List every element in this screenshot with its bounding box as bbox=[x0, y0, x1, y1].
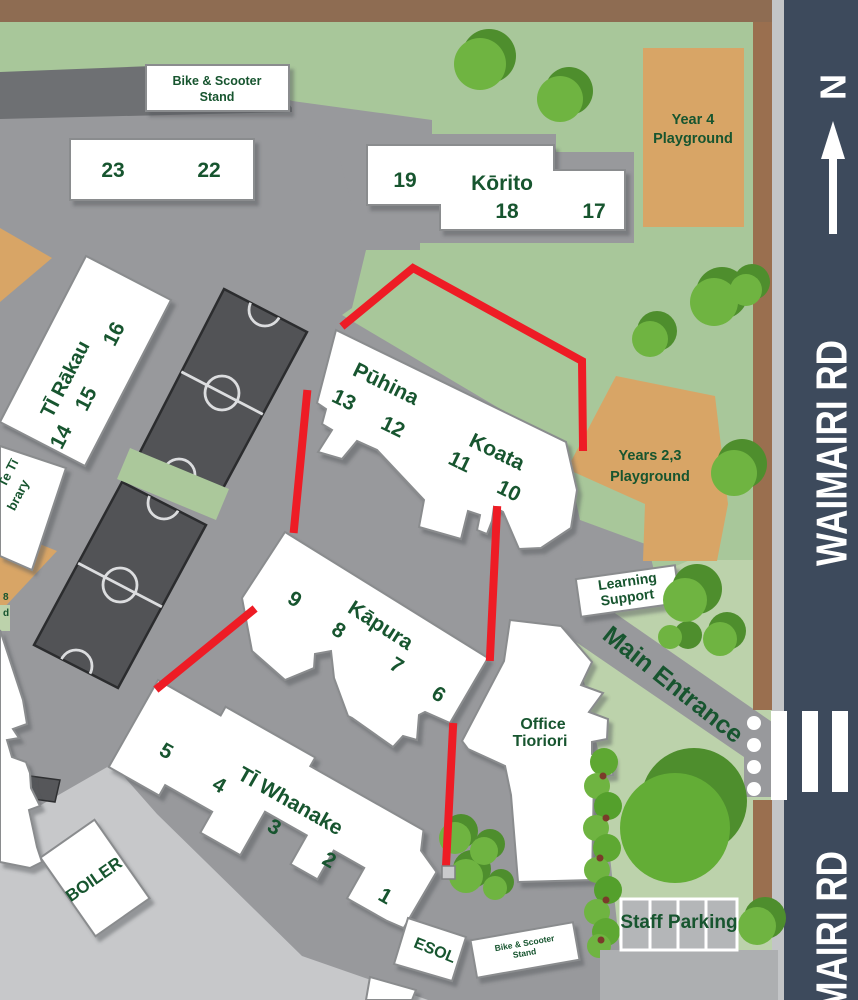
svg-text:Stand: Stand bbox=[200, 90, 235, 104]
svg-text:Years 2,3: Years 2,3 bbox=[619, 448, 682, 464]
svg-text:WAIMAIRI RD: WAIMAIRI RD bbox=[808, 851, 857, 1000]
svg-text:d: d bbox=[3, 608, 9, 619]
svg-text:18: 18 bbox=[495, 200, 519, 223]
svg-text:17: 17 bbox=[582, 200, 605, 223]
svg-text:Tioriori: Tioriori bbox=[513, 733, 568, 750]
svg-text:22: 22 bbox=[197, 159, 220, 182]
svg-text:Kōrito: Kōrito bbox=[471, 172, 533, 195]
svg-text:Staff Parking: Staff Parking bbox=[620, 912, 737, 933]
svg-text:N: N bbox=[813, 74, 854, 100]
svg-text:WAIMAIRI RD: WAIMAIRI RD bbox=[808, 340, 857, 566]
svg-text:19: 19 bbox=[393, 169, 416, 192]
svg-text:23: 23 bbox=[101, 159, 124, 182]
svg-text:Playground: Playground bbox=[610, 469, 690, 485]
svg-text:Year 4: Year 4 bbox=[672, 112, 715, 128]
svg-text:8: 8 bbox=[3, 592, 9, 603]
svg-text:Bike & Scooter: Bike & Scooter bbox=[173, 74, 262, 88]
svg-text:Office: Office bbox=[520, 716, 565, 733]
svg-text:Playground: Playground bbox=[653, 131, 733, 147]
